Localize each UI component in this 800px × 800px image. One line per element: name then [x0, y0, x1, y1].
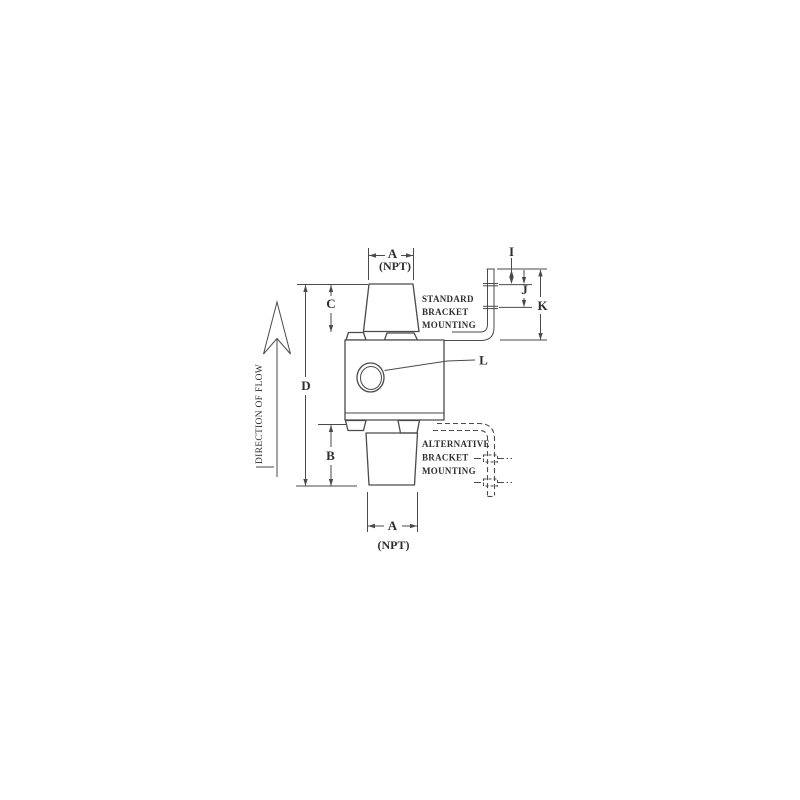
dimension-i: I	[497, 244, 547, 285]
dimension-b: B	[318, 425, 346, 487]
alternative-bracket-note: ALTERNATIVE BRACKET MOUNTING	[422, 439, 490, 476]
alternative-bracket-note-line2: BRACKET	[422, 453, 469, 463]
dimension-j: J	[499, 270, 532, 307]
dim-l-label: L	[479, 353, 488, 368]
npt-top-label: (NPT)	[379, 259, 411, 273]
direction-of-flow-label: DIRECTION OF FLOW	[255, 364, 265, 464]
dim-c-label: C	[326, 296, 335, 311]
standard-bracket-note: STANDARD BRACKET MOUNTING	[422, 294, 476, 330]
standard-bracket-note-line1: STANDARD	[422, 294, 474, 304]
dim-b-label: B	[326, 448, 335, 463]
direction-of-flow-arrow: DIRECTION OF FLOW	[255, 302, 291, 477]
dim-j-label: J	[521, 282, 528, 297]
side-hole	[357, 363, 384, 392]
dim-a-bottom-label: A	[388, 518, 398, 533]
dim-k-label: K	[537, 298, 548, 313]
dimension-c: C	[326, 285, 335, 332]
flow-device-diagram: DIRECTION OF FLOW D C B A (NPT)	[0, 0, 800, 800]
standard-bracket-note-line2: BRACKET	[422, 307, 469, 317]
dim-d-label: D	[301, 378, 310, 393]
alternative-bracket-note-line3: MOUNTING	[422, 466, 476, 476]
technical-drawing-page: DIRECTION OF FLOW D C B A (NPT)	[0, 0, 800, 800]
dim-i-label: I	[509, 244, 514, 259]
device-body	[345, 340, 444, 420]
upper-hex-flats	[346, 333, 418, 341]
alternative-bracket-note-line1: ALTERNATIVE	[422, 439, 490, 449]
standard-bracket-note-line3: MOUNTING	[422, 320, 476, 330]
upper-npt-thread	[364, 284, 420, 332]
dimension-a-bottom: A (NPT)	[368, 492, 418, 552]
lower-npt-thread	[366, 433, 418, 485]
lower-hex-flats	[346, 421, 420, 434]
dimension-a-top: A (NPT)	[369, 246, 414, 280]
npt-bottom-label: (NPT)	[378, 538, 410, 552]
